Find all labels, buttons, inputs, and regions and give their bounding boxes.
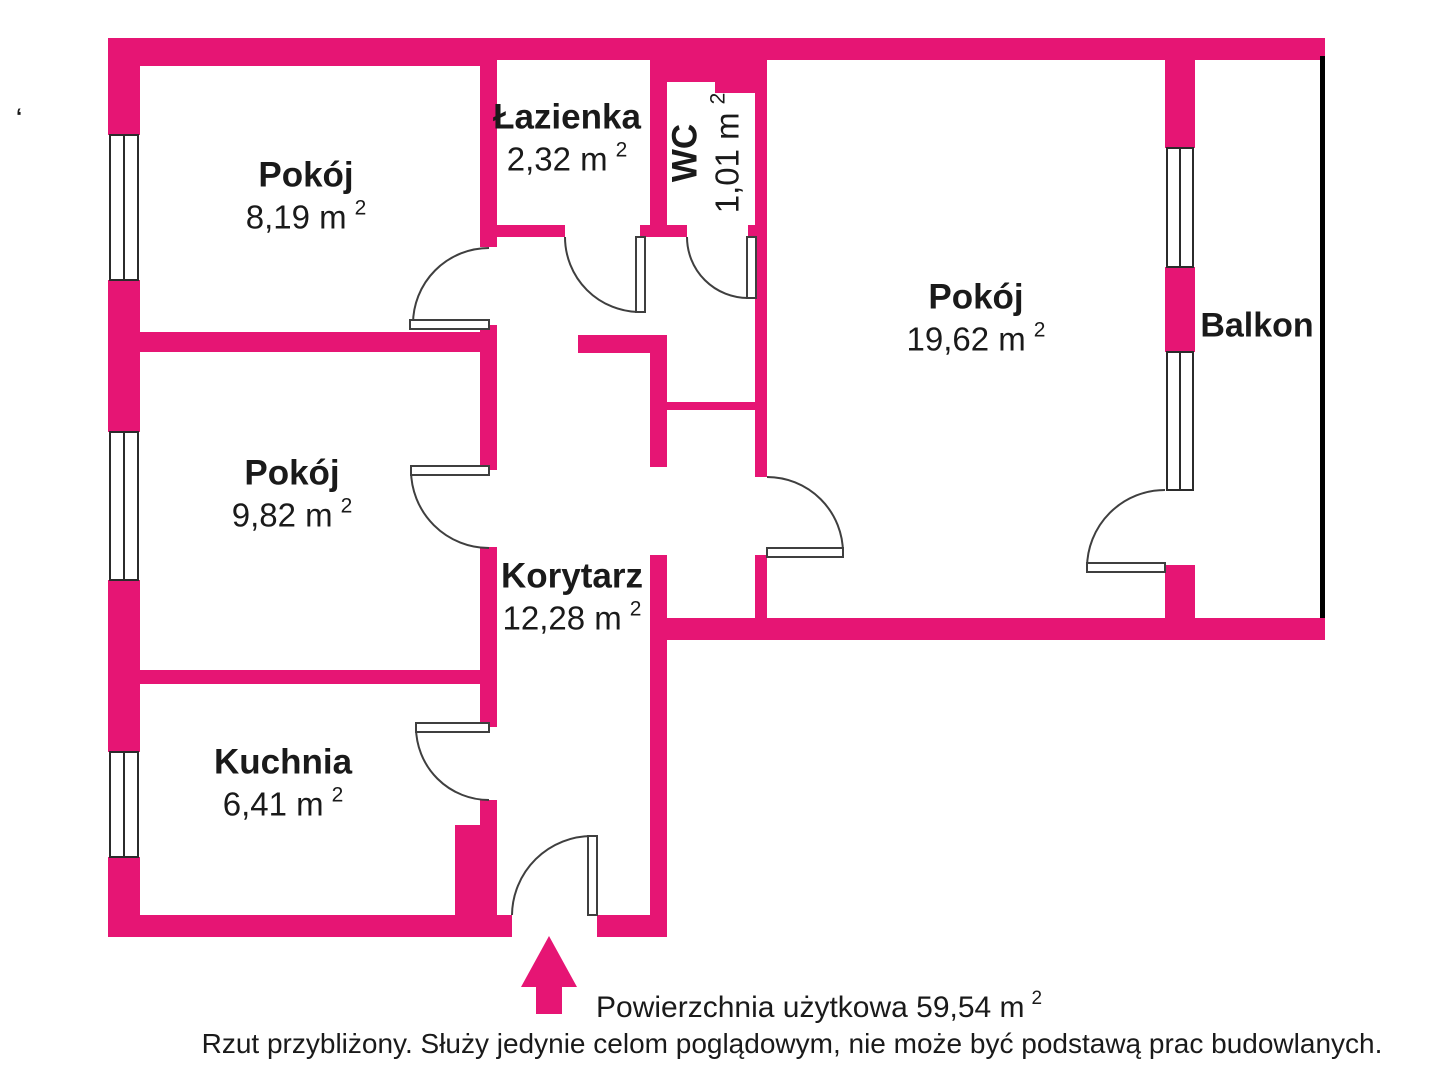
wall-segment xyxy=(140,332,497,352)
door-arc xyxy=(512,836,592,915)
wall-segment xyxy=(480,547,497,727)
wall-segment xyxy=(1165,267,1195,352)
door-arc xyxy=(687,237,748,298)
door-panel xyxy=(416,723,489,732)
floor-plan: Pokój 8,19 m2 Łazienka 2,32 m2 WC 1,01 m… xyxy=(0,0,1440,1080)
door-arc xyxy=(565,237,640,312)
room-label-korytarz: Korytarz 12,28 m2 xyxy=(501,556,643,639)
room-label-wc: WC 1,01 m2 xyxy=(665,93,748,214)
wall-segment xyxy=(667,60,757,82)
room-area: 12,28 m2 xyxy=(501,598,643,638)
area-superscript: 2 xyxy=(1034,318,1046,341)
wall-segment xyxy=(108,580,140,752)
room-area: 1,01 m2 xyxy=(707,93,747,214)
room-area: 8,19 m2 xyxy=(246,197,367,237)
room-name: Łazienka xyxy=(493,97,641,140)
door-arc xyxy=(767,477,843,553)
wall-segment xyxy=(497,38,1325,60)
room-label-pokoj-1: Pokój 8,19 m2 xyxy=(246,155,367,238)
door-panel xyxy=(767,548,843,557)
balcony-rail-line xyxy=(1320,56,1325,618)
wall-segment xyxy=(1165,565,1195,618)
room-label-lazienka: Łazienka 2,32 m2 xyxy=(493,97,641,180)
door-panel xyxy=(588,836,597,915)
stray-mark: ‘ xyxy=(16,104,22,130)
wall-segment xyxy=(650,618,1325,640)
room-area: 9,82 m2 xyxy=(232,495,353,535)
wall-segment xyxy=(667,402,757,410)
door-arc xyxy=(411,470,489,548)
wall-segment xyxy=(492,225,565,237)
wall-segment xyxy=(108,38,140,135)
wall-segment xyxy=(748,225,757,237)
disclaimer-text: Rzut przybliżony. Służy jedynie celom po… xyxy=(202,1028,1383,1060)
room-name: Pokój xyxy=(246,155,367,198)
area-superscript: 2 xyxy=(630,597,642,620)
room-name: Kuchnia xyxy=(214,742,352,785)
room-area: 6,41 m2 xyxy=(214,784,352,824)
area-superscript: 2 xyxy=(355,196,367,219)
area-superscript: 2 xyxy=(706,93,729,105)
door-panel xyxy=(411,466,489,475)
room-name: Pokój xyxy=(232,453,353,496)
room-label-kuchnia: Kuchnia 6,41 m2 xyxy=(214,742,352,825)
door-arc xyxy=(413,248,489,324)
wall-segment xyxy=(650,353,667,467)
wall-segment xyxy=(108,280,140,432)
door-panel xyxy=(410,320,489,329)
door-panel xyxy=(1087,563,1165,572)
room-label-pokoj-2: Pokój 19,62 m2 xyxy=(907,277,1046,360)
room-name: Pokój xyxy=(907,277,1046,320)
area-superscript: 2 xyxy=(616,138,628,161)
area-superscript: 2 xyxy=(341,494,353,517)
door-panel xyxy=(747,237,756,298)
wall-segment xyxy=(108,915,512,937)
area-superscript: 2 xyxy=(1032,988,1043,1009)
entrance-arrow xyxy=(521,936,577,1014)
wall-segment xyxy=(140,670,497,684)
room-name: Korytarz xyxy=(501,556,643,599)
total-area-text: Powierzchnia użytkowa 59,54 m2 xyxy=(596,991,1042,1025)
wall-segment xyxy=(1165,38,1195,148)
wall-segment xyxy=(108,38,497,66)
area-superscript: 2 xyxy=(332,783,344,806)
door-arc xyxy=(1087,490,1165,568)
room-area: 19,62 m2 xyxy=(907,319,1046,359)
wall-segment xyxy=(650,555,667,937)
wall-segment xyxy=(480,800,497,825)
balcony-label: Balkon xyxy=(1200,305,1313,346)
wall-segment xyxy=(455,825,497,915)
door-panel xyxy=(636,237,645,312)
room-label-pokoj-3: Pokój 9,82 m2 xyxy=(232,453,353,536)
wall-segment xyxy=(640,225,687,237)
door-arc xyxy=(416,727,489,800)
room-name: WC xyxy=(665,93,708,214)
room-area: 2,32 m2 xyxy=(493,139,641,179)
wall-segment xyxy=(578,335,667,353)
